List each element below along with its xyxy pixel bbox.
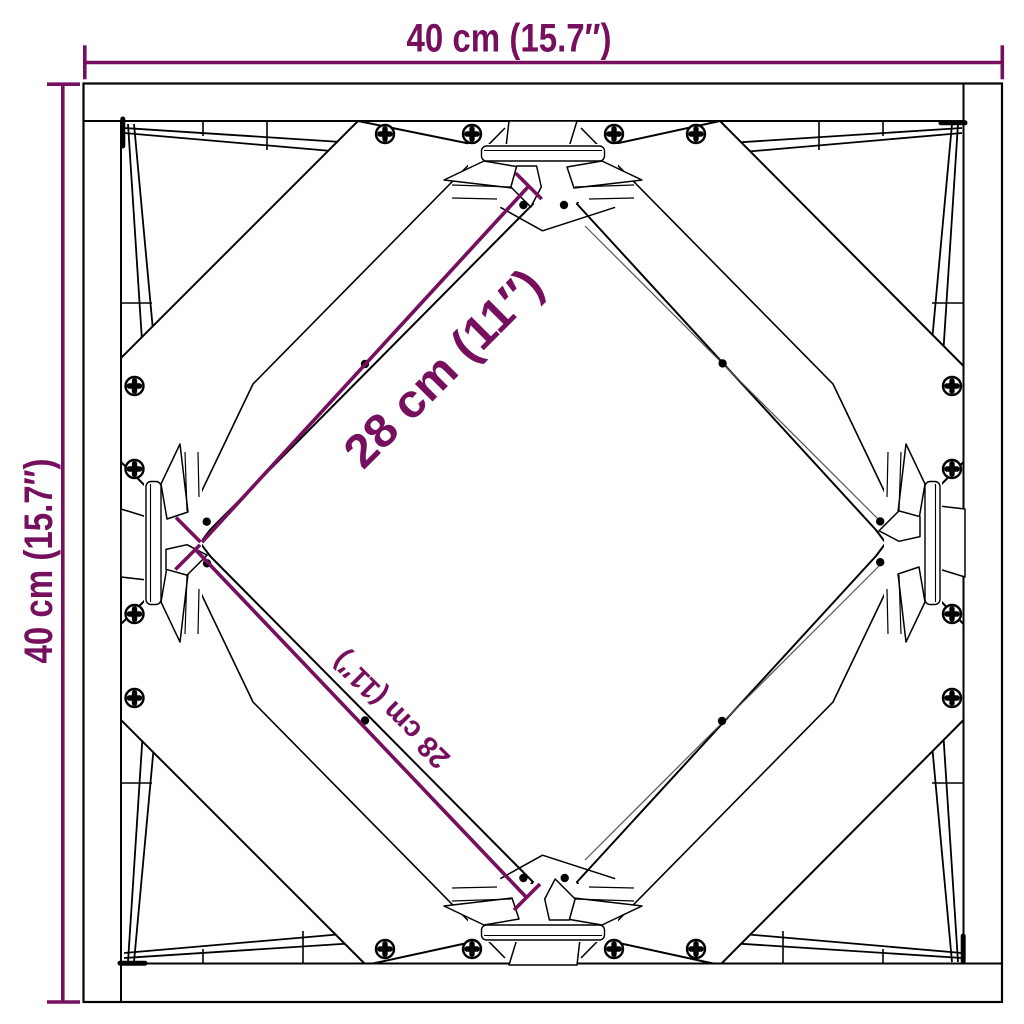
svg-text:40 cm (15.7″): 40 cm (15.7″) (17, 459, 61, 664)
svg-text:40 cm (15.7″): 40 cm (15.7″) (407, 17, 612, 61)
